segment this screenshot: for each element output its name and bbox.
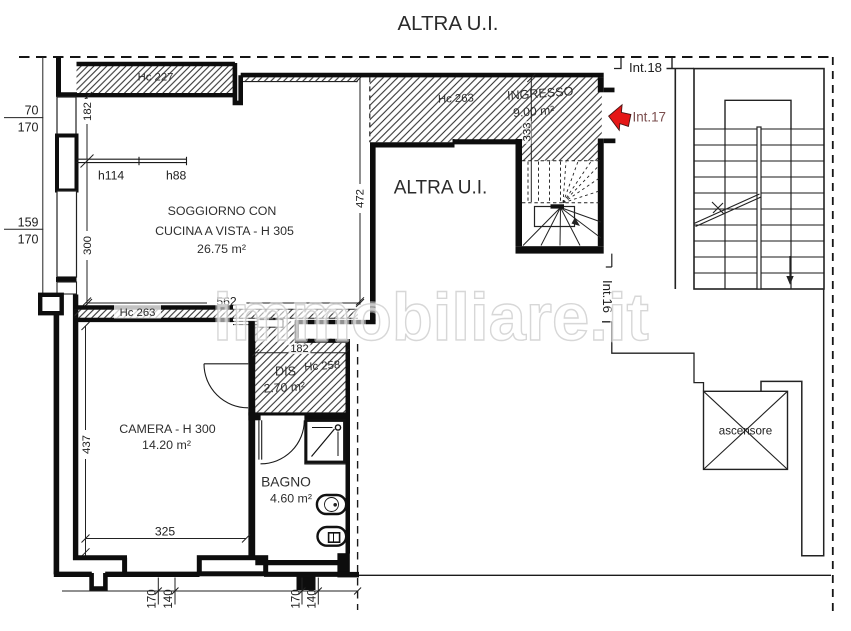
svg-text:140: 140 <box>307 589 319 608</box>
svg-text:ALTRA U.I.: ALTRA U.I. <box>394 178 488 199</box>
svg-text:Int.18: Int.18 <box>629 60 662 75</box>
svg-text:ALTRA U.I.: ALTRA U.I. <box>397 12 498 35</box>
svg-text:182: 182 <box>82 102 94 121</box>
svg-text:CAMERA - H 300: CAMERA - H 300 <box>119 422 216 436</box>
svg-text:437: 437 <box>81 435 93 454</box>
svg-text:4.60 m²: 4.60 m² <box>270 492 312 506</box>
svg-text:immobiliare.it: immobiliare.it <box>213 280 649 355</box>
svg-text:DIS: DIS <box>275 365 296 379</box>
svg-text:14.20 m²: 14.20 m² <box>142 438 191 452</box>
svg-text:26.75 m²: 26.75 m² <box>197 242 246 256</box>
svg-text:9.00 m²: 9.00 m² <box>513 103 555 120</box>
svg-text:Hc 263: Hc 263 <box>438 92 474 105</box>
svg-text:70: 70 <box>25 104 39 118</box>
svg-text:300: 300 <box>82 236 94 255</box>
svg-text:BAGNO: BAGNO <box>261 475 311 490</box>
svg-text:333: 333 <box>522 122 534 141</box>
svg-text:170: 170 <box>291 589 303 608</box>
svg-text:CUCINA A VISTA - H 305: CUCINA A VISTA - H 305 <box>155 224 294 238</box>
svg-text:Hc 258: Hc 258 <box>304 359 341 373</box>
svg-text:170: 170 <box>147 589 159 608</box>
svg-text:SOGGIORNO CON: SOGGIORNO CON <box>168 204 277 218</box>
svg-text:325: 325 <box>155 525 176 539</box>
svg-text:ascensore: ascensore <box>719 425 773 438</box>
svg-text:159: 159 <box>18 216 39 230</box>
svg-text:Int.17: Int.17 <box>633 110 667 125</box>
svg-text:Hc 227: Hc 227 <box>138 72 174 84</box>
svg-text:h88: h88 <box>166 169 187 183</box>
svg-text:Hc 263: Hc 263 <box>120 307 156 319</box>
svg-text:472: 472 <box>355 189 367 208</box>
svg-text:h114: h114 <box>98 169 124 183</box>
svg-text:140: 140 <box>163 589 175 608</box>
svg-text:170: 170 <box>18 233 39 247</box>
svg-text:2.70 m²: 2.70 m² <box>263 379 305 395</box>
svg-text:170: 170 <box>18 121 39 135</box>
